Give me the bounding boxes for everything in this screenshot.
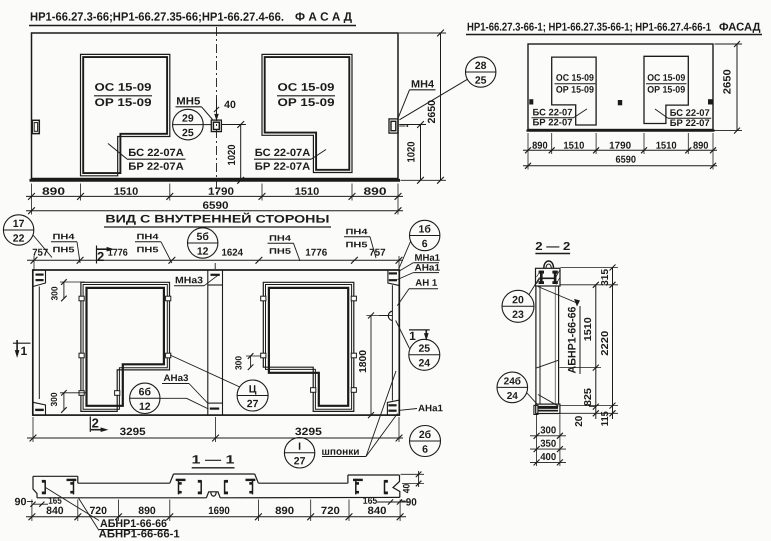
svg-text:НР1-66.27.3-66-1; НР1-66.27.35: НР1-66.27.3-66-1; НР1-66.27.35-66-1; НР1…: [467, 22, 711, 34]
svg-text:АНа1: АНа1: [414, 263, 440, 274]
svg-text:МН5: МН5: [176, 95, 200, 107]
svg-text:1510: 1510: [656, 141, 677, 152]
svg-text:1020: 1020: [226, 144, 238, 165]
svg-text:Ц: Ц: [249, 383, 257, 395]
svg-text:1510: 1510: [583, 317, 594, 341]
svg-text:12: 12: [197, 246, 209, 258]
svg-text:23: 23: [512, 309, 524, 321]
svg-text:АБНР1-66-66-1: АБНР1-66-66-1: [99, 528, 180, 540]
svg-text:2: 2: [97, 249, 104, 264]
svg-text:1: 1: [20, 344, 27, 358]
svg-text:АНа1: АНа1: [418, 403, 444, 414]
svg-text:1510: 1510: [563, 141, 584, 152]
svg-text:350: 350: [540, 439, 556, 450]
svg-text:12: 12: [139, 401, 151, 413]
svg-text:ПН4: ПН4: [345, 227, 368, 236]
svg-text:ОР 15-09: ОР 15-09: [647, 85, 685, 96]
svg-text:ПН4: ПН4: [269, 234, 292, 243]
svg-text:300: 300: [234, 356, 244, 370]
svg-text:24б: 24б: [504, 376, 521, 387]
svg-text:1: 1: [409, 329, 416, 343]
svg-text:3295: 3295: [295, 426, 322, 438]
svg-text:720: 720: [321, 505, 340, 517]
svg-text:28: 28: [475, 60, 487, 72]
svg-text:890: 890: [138, 505, 156, 517]
svg-text:890: 890: [532, 141, 548, 152]
svg-text:ОР 15-09: ОР 15-09: [277, 97, 334, 109]
svg-text:НР1-66.27.3-66;НР1-66.27.35-66: НР1-66.27.3-66;НР1-66.27.35-66;НР1-66.27…: [30, 10, 284, 24]
svg-text:ОС 15-09: ОС 15-09: [277, 82, 334, 94]
svg-text:27: 27: [294, 455, 306, 467]
svg-text:22: 22: [13, 233, 25, 245]
svg-text:1624: 1624: [222, 248, 244, 259]
svg-text:6590: 6590: [202, 200, 228, 212]
svg-text:25: 25: [475, 75, 487, 87]
svg-text:БР 22-07А: БР 22-07А: [128, 161, 184, 173]
svg-text:1776: 1776: [305, 248, 327, 259]
svg-text:ОР 15-09: ОР 15-09: [94, 97, 151, 109]
svg-text:ПН5: ПН5: [52, 245, 75, 254]
svg-text:БС 22-07А: БС 22-07А: [255, 147, 311, 159]
svg-text:ОР 15-09: ОР 15-09: [556, 85, 594, 96]
svg-text:165: 165: [48, 496, 62, 507]
svg-text:720: 720: [89, 505, 107, 517]
svg-text:ПН4: ПН4: [136, 232, 159, 241]
svg-text:5б: 5б: [197, 231, 210, 243]
svg-text:ОС 15-09: ОС 15-09: [647, 73, 685, 84]
svg-text:6590: 6590: [616, 155, 637, 166]
svg-text:25: 25: [418, 343, 430, 355]
svg-text:825: 825: [583, 388, 594, 406]
svg-text:27: 27: [247, 398, 259, 410]
svg-text:890: 890: [275, 505, 294, 517]
svg-text:300: 300: [540, 425, 556, 436]
svg-text:17: 17: [13, 218, 25, 230]
svg-text:6б: 6б: [139, 386, 152, 398]
svg-text:1510: 1510: [295, 186, 320, 198]
svg-text:3295: 3295: [120, 426, 146, 438]
svg-text:1790: 1790: [609, 141, 631, 152]
svg-text:40: 40: [224, 99, 236, 111]
svg-text:1б: 1б: [419, 223, 432, 235]
svg-text:ФАСАД: ФАСАД: [719, 22, 761, 34]
svg-text:24: 24: [418, 357, 430, 369]
svg-text:ПН4: ПН4: [52, 232, 75, 241]
svg-text:757: 757: [369, 248, 386, 259]
svg-text:1690: 1690: [208, 505, 230, 517]
svg-text:300: 300: [49, 393, 59, 407]
svg-text:Ф А С А Д: Ф А С А Д: [295, 10, 352, 24]
svg-text:2: 2: [92, 415, 99, 430]
svg-text:2220: 2220: [600, 330, 611, 355]
svg-text:1020: 1020: [406, 141, 418, 162]
svg-text:ОС 15-09: ОС 15-09: [556, 73, 594, 84]
svg-text:90: 90: [14, 496, 26, 508]
svg-text:ПН5: ПН5: [269, 247, 292, 256]
svg-text:АН 1: АН 1: [415, 278, 438, 289]
svg-text:90: 90: [406, 497, 417, 509]
svg-text:300: 300: [50, 287, 60, 301]
svg-text:315: 315: [600, 268, 611, 285]
svg-text:1790: 1790: [208, 186, 234, 198]
svg-text:МН4: МН4: [411, 78, 434, 90]
svg-text:20: 20: [574, 415, 585, 426]
svg-text:1 — 1: 1 — 1: [191, 452, 234, 466]
svg-text:40: 40: [402, 484, 413, 494]
svg-text:25: 25: [182, 127, 194, 139]
svg-text:115: 115: [600, 411, 611, 426]
svg-text:2650: 2650: [722, 69, 734, 94]
svg-text:БР 22-07: БР 22-07: [670, 118, 710, 129]
svg-text:165: 165: [363, 496, 378, 507]
svg-text:ОС 15-09: ОС 15-09: [94, 82, 151, 94]
svg-text:1510: 1510: [114, 186, 139, 198]
svg-text:400: 400: [540, 452, 556, 463]
svg-text:ПН5: ПН5: [345, 240, 368, 249]
svg-text:БР 22-07: БР 22-07: [532, 117, 572, 128]
svg-text:МНа3: МНа3: [175, 275, 203, 286]
svg-text:БР 22-07А: БР 22-07А: [255, 161, 311, 173]
svg-text:890: 890: [363, 186, 386, 198]
svg-text:2 — 2: 2 — 2: [535, 241, 570, 253]
svg-text:1800: 1800: [358, 350, 369, 373]
svg-text:6: 6: [422, 444, 428, 456]
svg-text:6: 6: [422, 238, 428, 250]
svg-text:АНа3: АНа3: [163, 373, 188, 384]
svg-text:29: 29: [182, 113, 194, 125]
svg-text:ВИД С ВНУТРЕННЕЙ СТОРОНЫ: ВИД С ВНУТРЕННЕЙ СТОРОНЫ: [105, 213, 329, 226]
svg-text:757: 757: [32, 248, 48, 259]
svg-text:20: 20: [512, 294, 524, 306]
svg-text:890: 890: [42, 186, 65, 198]
svg-text:ПН5: ПН5: [136, 245, 159, 254]
svg-text:АБНР1-66-66: АБНР1-66-66: [567, 307, 579, 374]
svg-text:БС 22-07А: БС 22-07А: [128, 147, 184, 159]
svg-text:2б: 2б: [419, 429, 432, 441]
svg-text:2650: 2650: [426, 100, 438, 124]
svg-text:I: I: [298, 441, 301, 453]
svg-text:890: 890: [693, 141, 709, 152]
svg-text:24: 24: [507, 391, 519, 402]
